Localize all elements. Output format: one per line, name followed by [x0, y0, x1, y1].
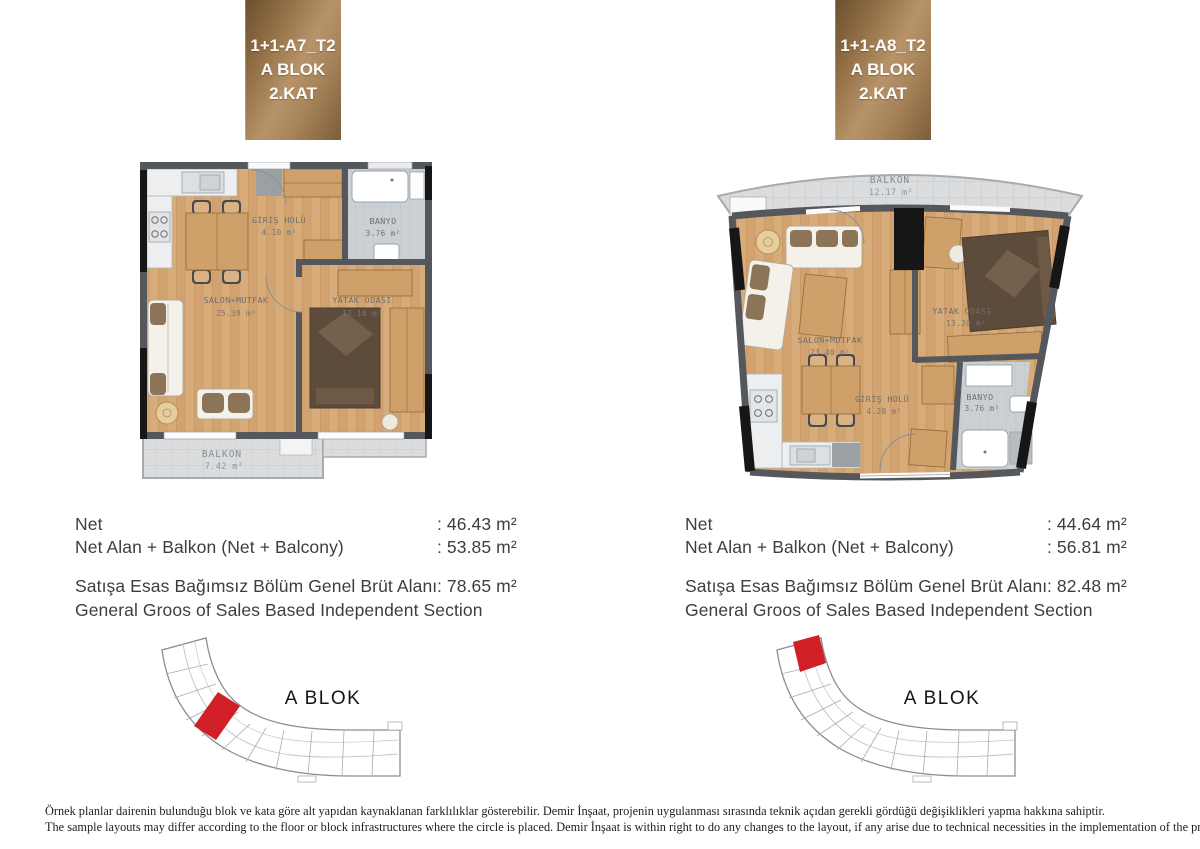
- room-area-banyo: 3.76 m²: [366, 229, 401, 238]
- room-area-salon: 25.39 m²: [216, 309, 256, 318]
- sofa: [786, 226, 862, 268]
- sink-icon: [966, 365, 1012, 386]
- hall-closet: [922, 366, 954, 404]
- room-label-yatak: YATAK ODASI: [932, 306, 991, 316]
- site-plan-a7: A BLOK: [150, 634, 420, 794]
- net-label: Net: [75, 514, 103, 535]
- site-block-label: A BLOK: [904, 688, 981, 709]
- unit-block: A BLOK: [835, 58, 931, 82]
- sofa: [148, 300, 183, 396]
- net-label: Net: [685, 514, 713, 535]
- bench: [197, 389, 253, 419]
- coffee-table: [799, 274, 847, 338]
- room-area-balkon: 12.17 m²: [869, 188, 913, 198]
- room-label-giris: GİRİŞ HOLÜ: [252, 215, 306, 225]
- room-area-giris: 4.28 m²: [867, 407, 902, 416]
- wardrobe: [390, 308, 424, 412]
- unit-block: A BLOK: [245, 58, 341, 82]
- room-label-balkon: BALKON: [870, 175, 910, 186]
- hall-closet: [909, 429, 947, 467]
- unit-code: 1+1-A8_T2: [835, 34, 931, 58]
- disclaimer-english: The sample layouts may differ according …: [45, 820, 1195, 835]
- shower-tray-icon: [962, 430, 1008, 467]
- gross-value: : 82.48 m²: [1047, 576, 1127, 597]
- room-label-banyo: BANYO: [370, 216, 397, 226]
- gross-label-en: General Groos of Sales Based Independent…: [685, 600, 1093, 621]
- building-stub: [298, 776, 316, 782]
- net-balcony-label: Net Alan + Balkon (Net + Balcony): [685, 537, 954, 558]
- dresser: [338, 270, 412, 296]
- room-area-yatak: 13.18 m²: [342, 309, 382, 318]
- bed: [962, 230, 1056, 331]
- room-label-giris: GİRİŞ HOLÜ: [855, 394, 909, 404]
- room-area-banyo: 3.76 m²: [965, 404, 1000, 413]
- bath-shelf: [410, 172, 424, 199]
- unit-code: 1+1-A7_T2: [245, 34, 341, 58]
- disclaimer-turkish: Örnek planlar dairenin bulunduğu blok ve…: [45, 804, 1195, 819]
- bathtub-icon: [352, 171, 408, 202]
- unit-floor: 2.KAT: [835, 82, 931, 106]
- room-label-salon: SALON+MUTFAK: [798, 335, 863, 345]
- room-label-balkon: BALKON: [202, 449, 242, 460]
- site-plan-a8: A BLOK: [765, 634, 1035, 794]
- building-stub: [388, 722, 402, 730]
- room-area-balkon: 7.42 m²: [205, 462, 244, 472]
- wall-accents: [894, 208, 924, 270]
- unit-floor: 2.KAT: [245, 82, 341, 106]
- unit-tag-a8: 1+1-A8_T2 A BLOK 2.KAT: [835, 0, 931, 140]
- site-block-label: A BLOK: [285, 688, 362, 709]
- floor-plan-a7: GİRİŞ HOLÜ 4.10 m² BANYO 3.76 m² SALON+M…: [140, 162, 432, 480]
- room-area-yatak: 13.20 m²: [946, 319, 986, 328]
- room-area-giris: 4.10 m²: [262, 228, 297, 237]
- gross-label-tr: Satışa Esas Bağımsız Bölüm Genel Brüt Al…: [685, 576, 1047, 597]
- net-balcony-value: : 56.81 m²: [1047, 537, 1127, 558]
- bed: [310, 308, 380, 408]
- floor-plan-a8: BALKON 12.17 m² SALON+MUTFAK 23.40 m² YA…: [710, 150, 1090, 482]
- stool: [382, 414, 398, 430]
- net-value: : 46.43 m²: [437, 514, 517, 535]
- stove-icon: [750, 390, 777, 422]
- net-balcony-value: : 53.85 m²: [437, 537, 517, 558]
- room-label-banyo: BANYO: [967, 392, 994, 402]
- room-label-salon: SALON+MUTFAK: [204, 295, 269, 305]
- side-table: [156, 402, 178, 424]
- net-value: : 44.64 m²: [1047, 514, 1127, 535]
- gross-label-en: General Groos of Sales Based Independent…: [75, 600, 483, 621]
- unit-tag-a7: 1+1-A7_T2 A BLOK 2.KAT: [245, 0, 341, 140]
- room-label-yatak: YATAK ODASI: [332, 295, 391, 305]
- building-outline: [162, 638, 400, 776]
- brochure-page: { "colors": { "tag_bronze_dark": "#6b4f2…: [0, 0, 1200, 849]
- stove-icon: [149, 212, 170, 242]
- side-table: [756, 230, 780, 254]
- gross-value: : 78.65 m²: [437, 576, 517, 597]
- gross-label-tr: Satışa Esas Bağımsız Bölüm Genel Brüt Al…: [75, 576, 437, 597]
- building-stub: [913, 776, 931, 782]
- net-balcony-label: Net Alan + Balkon (Net + Balcony): [75, 537, 344, 558]
- room-area-salon: 23.40 m²: [810, 348, 850, 357]
- wardrobe: [284, 169, 342, 197]
- balcony: [143, 433, 426, 478]
- toilet-icon: [374, 244, 399, 261]
- building-stub: [1003, 722, 1017, 730]
